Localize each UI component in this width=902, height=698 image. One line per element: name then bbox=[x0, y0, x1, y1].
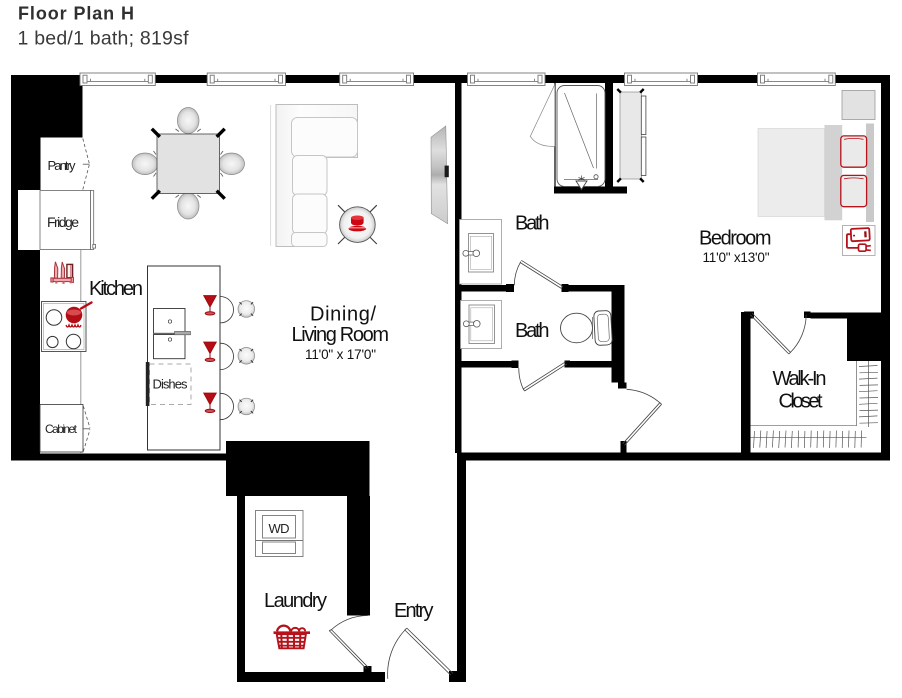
svg-text:Dishes: Dishes bbox=[153, 377, 189, 392]
svg-text:Closet: Closet bbox=[779, 391, 823, 413]
svg-text:Entry: Entry bbox=[394, 600, 434, 622]
svg-text:Bath: Bath bbox=[515, 320, 550, 342]
svg-text:Pantry: Pantry bbox=[48, 158, 77, 173]
svg-text:Bedroom: Bedroom bbox=[699, 228, 772, 250]
svg-text:Walk-In: Walk-In bbox=[773, 368, 827, 390]
svg-text:Fridge: Fridge bbox=[47, 214, 79, 230]
svg-text:Kitchen: Kitchen bbox=[89, 278, 143, 300]
svg-text:Floor Plan H: Floor Plan H bbox=[18, 4, 134, 24]
svg-text:Dining/: Dining/ bbox=[310, 304, 376, 326]
svg-text:Living Room: Living Room bbox=[292, 324, 390, 346]
svg-text:WD: WD bbox=[269, 521, 290, 536]
svg-text:Cabinet: Cabinet bbox=[45, 422, 78, 436]
svg-text:1 bed/1 bath; 819sf: 1 bed/1 bath; 819sf bbox=[18, 28, 190, 50]
svg-text:11'0" x 17'0": 11'0" x 17'0" bbox=[305, 347, 376, 362]
svg-text:Laundry: Laundry bbox=[264, 590, 327, 612]
svg-text:Bath: Bath bbox=[515, 213, 550, 235]
svg-text:11'0" x13'0": 11'0" x13'0" bbox=[703, 250, 770, 265]
